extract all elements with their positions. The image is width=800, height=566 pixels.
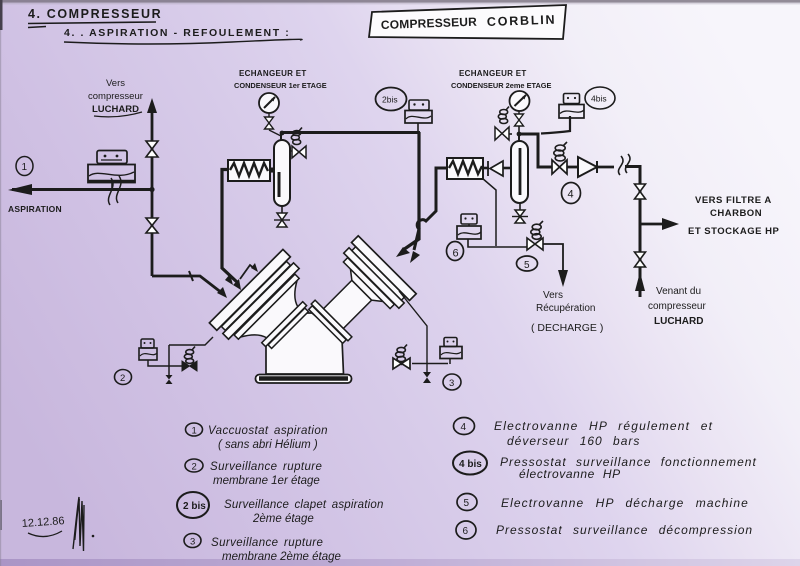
svg-text:2 bis: 2 bis <box>183 501 206 512</box>
svg-text:2: 2 <box>120 373 125 384</box>
svg-text:4bis: 4bis <box>591 94 607 104</box>
svg-text:Electrovanne HP régulement et: Electrovanne HP régulement et <box>494 419 713 433</box>
svg-text:Venant du: Venant du <box>656 286 701 297</box>
svg-text:membrane 1er étage: membrane 1er étage <box>213 475 320 487</box>
svg-text:Pressostat surveillance décomp: Pressostat surveillance décompression <box>496 523 753 537</box>
svg-text:CHARBON: CHARBON <box>710 208 762 219</box>
svg-text:membrane 2ème étage: membrane 2ème étage <box>222 551 341 563</box>
svg-text:1: 1 <box>22 162 28 173</box>
svg-text:VERS FILTRE A: VERS FILTRE A <box>695 195 772 206</box>
svg-text:6: 6 <box>463 526 469 537</box>
svg-text:5: 5 <box>464 498 470 509</box>
svg-text:3: 3 <box>190 537 195 548</box>
svg-text:ASPIRATION: ASPIRATION <box>8 204 62 214</box>
svg-text:Vers: Vers <box>106 78 125 89</box>
svg-text:CORBLIN: CORBLIN <box>487 13 557 29</box>
svg-text:LUCHARD: LUCHARD <box>92 104 139 115</box>
svg-text:Electrovanne HP décharge machi: Electrovanne HP décharge machine <box>501 496 749 510</box>
svg-text:4. COMPRESSEUR: 4. COMPRESSEUR <box>28 7 162 21</box>
svg-text:3: 3 <box>449 378 454 389</box>
svg-text:4. . ASPIRATION - REFOULEMENT: 4. . ASPIRATION - REFOULEMENT : <box>64 27 290 39</box>
svg-text:Récupération: Récupération <box>536 303 595 314</box>
svg-text:Surveillance clapet aspiration: Surveillance clapet aspiration <box>224 499 384 511</box>
svg-text:CONDENSEUR 2eme ETAGE: CONDENSEUR 2eme ETAGE <box>451 81 552 90</box>
svg-text:6: 6 <box>453 248 459 260</box>
svg-text:2: 2 <box>192 462 197 473</box>
svg-text:2bis: 2bis <box>382 95 398 105</box>
svg-text:4: 4 <box>568 189 574 201</box>
svg-text:4: 4 <box>461 422 467 433</box>
svg-text:compresseur: compresseur <box>88 91 143 102</box>
svg-text:électrovanne HP: électrovanne HP <box>519 467 621 481</box>
svg-text:Surveillance rupture: Surveillance rupture <box>210 461 322 473</box>
svg-text:LUCHARD: LUCHARD <box>654 316 703 327</box>
svg-text:Surveillance rupture: Surveillance rupture <box>211 537 323 549</box>
svg-text:ET STOCKAGE HP: ET STOCKAGE HP <box>688 226 779 237</box>
svg-text:compresseur: compresseur <box>648 301 706 312</box>
svg-text:( sans abri Hélium ): ( sans abri Hélium ) <box>218 439 318 451</box>
svg-text:Vers: Vers <box>543 290 563 301</box>
svg-text:4 bis: 4 bis <box>459 459 482 470</box>
svg-text:( DECHARGE ): ( DECHARGE ) <box>531 322 603 334</box>
svg-text:5: 5 <box>524 260 530 271</box>
svg-text:1: 1 <box>192 426 197 437</box>
svg-text:déverseur 160 bars: déverseur 160 bars <box>507 434 640 448</box>
svg-text:2ème étage: 2ème étage <box>252 513 314 525</box>
svg-text:Vaccuostat aspiration: Vaccuostat aspiration <box>208 425 328 437</box>
svg-text:ECHANGEUR ET: ECHANGEUR ET <box>459 69 527 78</box>
svg-text:ECHANGEUR ET: ECHANGEUR ET <box>239 69 307 78</box>
svg-text:CONDENSEUR 1er ETAGE: CONDENSEUR 1er ETAGE <box>234 81 327 90</box>
